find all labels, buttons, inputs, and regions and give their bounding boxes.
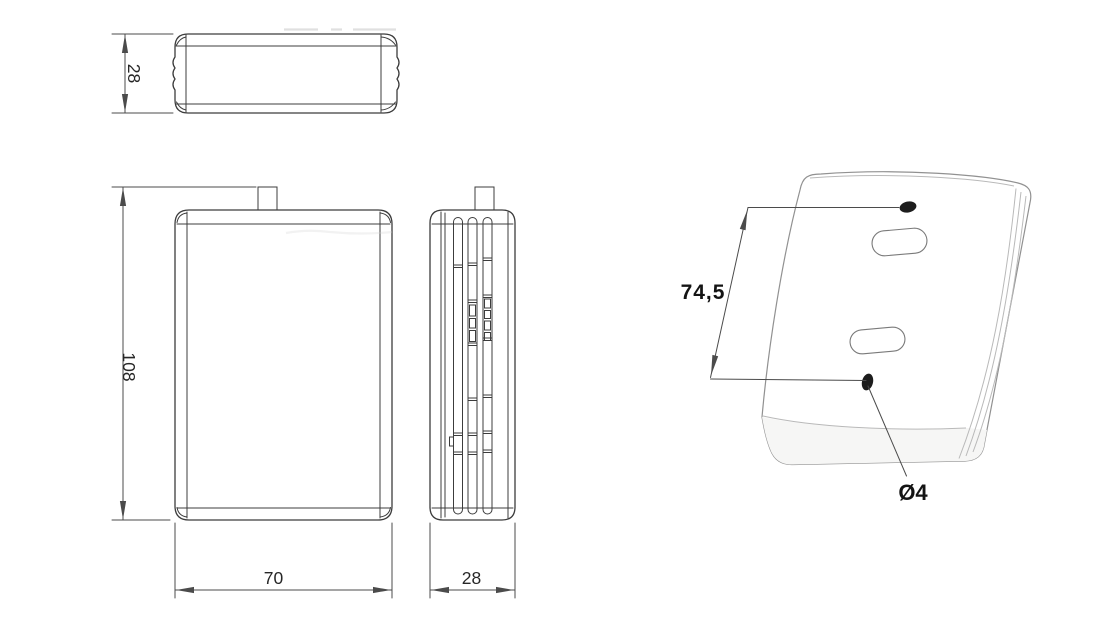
dim-label-hole-spacing: 74,5	[681, 281, 726, 304]
vent-slot-3	[483, 218, 492, 515]
vent-slot-2-latch-details	[470, 305, 476, 342]
dim-height: 108	[112, 187, 256, 520]
ghost-watermark	[286, 231, 392, 234]
top-view	[173, 30, 399, 114]
arrowhead-right	[373, 587, 391, 593]
side-view	[430, 187, 515, 520]
arrowhead-down	[122, 94, 128, 113]
vent-slot-1-bridges	[454, 265, 463, 455]
vent-slot-1-notch	[450, 437, 454, 446]
arrowhead-up	[120, 188, 126, 207]
iso-mounting-slot-upper	[871, 227, 928, 257]
side-view-outline	[430, 210, 515, 520]
side-view-cable-tab	[475, 187, 494, 210]
vent-slot-2-bridges	[468, 263, 477, 455]
vent-slot-3-latch-details	[485, 299, 491, 341]
dim-label-width: 70	[264, 568, 284, 588]
arrowhead-up	[122, 35, 128, 54]
top-view-corner-arcs	[177, 37, 396, 110]
arrowhead-left	[431, 587, 449, 593]
front-view	[175, 187, 392, 520]
iso-side-vent-lines	[959, 189, 1026, 459]
iso-view	[762, 172, 1031, 465]
vent-slot-2	[468, 218, 477, 515]
front-view-cable-tab	[258, 187, 277, 210]
iso-body	[762, 172, 1031, 465]
dim-label-height: 108	[119, 352, 139, 381]
iso-bottom-face	[762, 417, 987, 465]
dim-label-hole-diameter: Ø4	[898, 480, 928, 505]
technical-drawing: 28 108 70	[0, 0, 1104, 631]
iso-mounting-slot-lower	[849, 326, 906, 355]
arrowhead-up	[740, 210, 748, 230]
dim-top-depth: 28	[112, 34, 173, 113]
top-view-inset-lines	[176, 35, 396, 112]
iso-mounting-hole-top	[899, 200, 918, 214]
side-view-inset-lines	[432, 212, 513, 518]
front-view-inset-lines	[177, 212, 390, 518]
front-view-outline	[175, 210, 392, 520]
front-view-corner-arcs	[177, 213, 391, 517]
dim-label-side-depth: 28	[462, 568, 481, 588]
arrowhead-down	[120, 501, 126, 520]
arrowhead-right	[496, 587, 514, 593]
dim-side-depth: 28	[430, 523, 515, 598]
extension-lines	[175, 523, 392, 598]
vent-slot-3-bridges	[483, 258, 492, 453]
leader-line-bottom-hole	[711, 379, 867, 381]
arrowhead-down	[711, 355, 718, 376]
drawing-canvas: 28 108 70	[0, 0, 1104, 631]
iso-mounting-hole-bottom	[860, 372, 875, 391]
dim-width: 70	[175, 523, 392, 598]
vent-slot-1	[454, 218, 463, 515]
arrowhead-left	[176, 587, 194, 593]
dim-label-top-depth: 28	[124, 64, 144, 83]
